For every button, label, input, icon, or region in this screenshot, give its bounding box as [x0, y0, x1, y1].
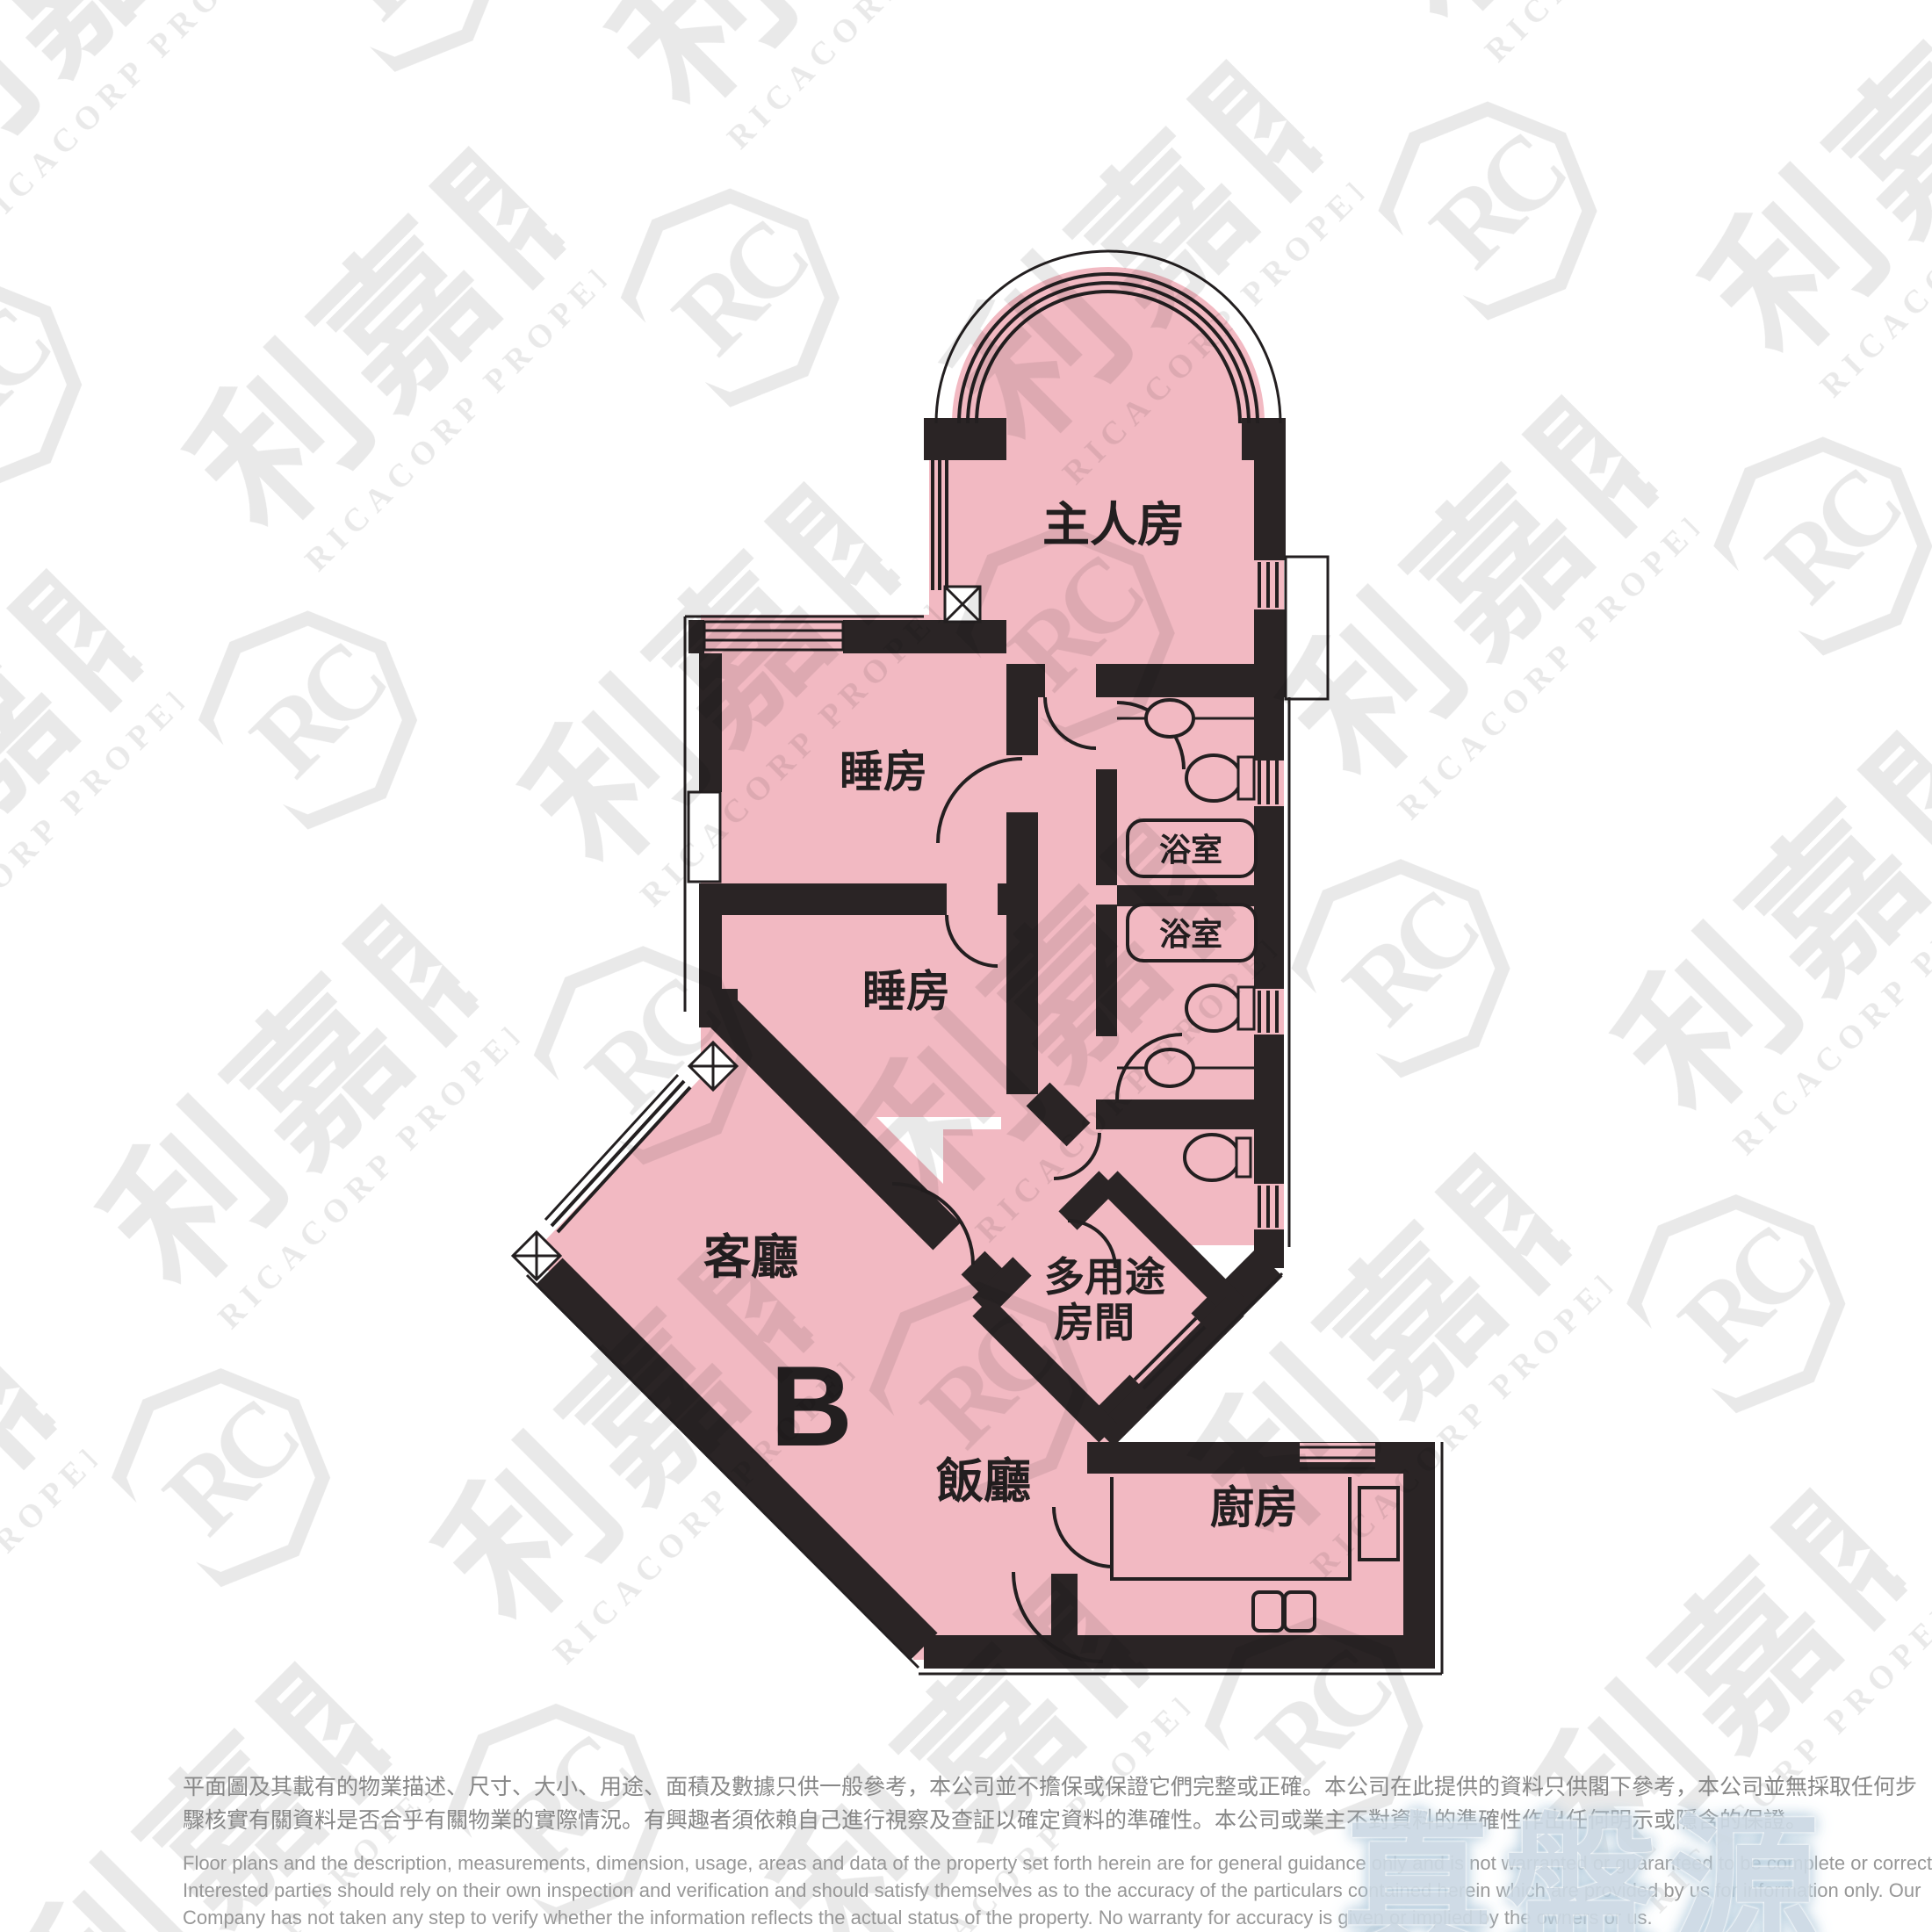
property-listing-brand-logo: 真盤源: [1342, 1763, 1921, 1932]
floor-plan-svg: 利嘉閣 RICACORP PROPERTIES RC: [0, 0, 1932, 1932]
watermark-overlay: [0, 0, 1932, 1932]
floor-plan-page: 利嘉閣 RICACORP PROPERTIES RC: [0, 0, 1932, 1932]
